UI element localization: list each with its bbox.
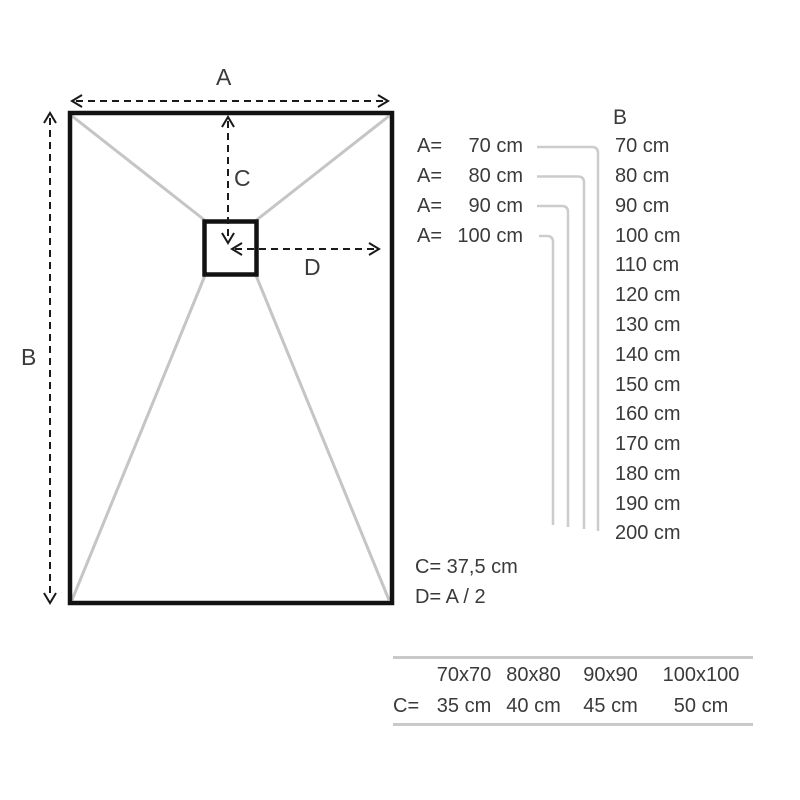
label-height-b: B (21, 346, 36, 369)
size-table-row-label: C= (393, 695, 433, 718)
b-size-value: 190 cm (615, 489, 681, 519)
arrowhead-down-icon (44, 593, 56, 603)
connector-a100 (539, 236, 553, 525)
formula-c: C= 37,5 cm (415, 552, 518, 582)
connector-a80 (537, 177, 584, 530)
b-size-value: 180 cm (615, 459, 681, 489)
b-size-list: 70 cm 80 cm 90 cm 100 cm 110 cm 120 cm 1… (615, 132, 681, 549)
connector-lines (537, 147, 598, 531)
c-value-cell: 35 cm (433, 691, 495, 722)
b-size-value: 140 cm (615, 340, 681, 370)
a-size-label: A= (417, 165, 442, 188)
size-cell: 90x90 (572, 660, 649, 691)
a-size-row: A= 90 cm (417, 192, 523, 222)
size-table: 70x70 80x80 90x90 100x100 C= 35 cm 40 cm… (393, 656, 753, 726)
c-value-cells: 35 cm 40 cm 45 cm 50 cm (433, 691, 753, 722)
b-size-value: 90 cm (615, 192, 681, 222)
size-table-c-row: C= 35 cm 40 cm 45 cm 50 cm (393, 691, 753, 722)
b-column-header: B (613, 106, 627, 130)
formula-block: C= 37,5 cm D= A / 2 (415, 552, 518, 612)
size-cell: 100x100 (649, 660, 753, 691)
b-size-value: 110 cm (615, 251, 681, 281)
label-drain-offset-d: D (304, 256, 321, 279)
b-size-value: 130 cm (615, 311, 681, 341)
slope-line-top-left (72, 116, 207, 222)
shower-tray-dimension-diagram: A B C D B A= 70 cm A= 80 cm A= 90 cm A= … (0, 0, 800, 800)
a-size-value: 70 cm (469, 135, 523, 158)
dim-arrow-a (72, 95, 388, 107)
size-cell: 80x80 (495, 660, 572, 691)
b-size-value: 200 cm (615, 519, 681, 549)
size-table-header-row: 70x70 80x80 90x90 100x100 (393, 660, 753, 691)
b-size-value: 150 cm (615, 370, 681, 400)
a-size-row: A= 100 cm (417, 221, 523, 251)
a-size-value: 80 cm (469, 165, 523, 188)
b-size-value: 80 cm (615, 162, 681, 192)
b-size-value: 160 cm (615, 400, 681, 430)
size-cell: 70x70 (433, 660, 495, 691)
dim-arrow-b (44, 113, 56, 603)
b-size-value: 100 cm (615, 221, 681, 251)
a-size-list: A= 70 cm A= 80 cm A= 90 cm A= 100 cm (417, 132, 523, 251)
label-width-a: A (216, 66, 231, 89)
a-size-label: A= (417, 135, 442, 158)
a-size-value: 100 cm (457, 225, 523, 248)
label-drain-depth-c: C (234, 167, 251, 190)
slope-line-bottom-right (255, 273, 389, 600)
size-cells: 70x70 80x80 90x90 100x100 (433, 660, 753, 691)
a-size-value: 90 cm (469, 195, 523, 218)
b-size-value: 120 cm (615, 281, 681, 311)
c-value-cell: 45 cm (572, 691, 649, 722)
slope-lines (72, 116, 389, 600)
a-size-row: A= 70 cm (417, 132, 523, 162)
a-size-row: A= 80 cm (417, 162, 523, 192)
slope-line-top-right (254, 116, 389, 222)
c-value-cell: 40 cm (495, 691, 572, 722)
b-size-value: 170 cm (615, 430, 681, 460)
b-size-value: 70 cm (615, 132, 681, 162)
a-size-label: A= (417, 195, 442, 218)
c-value-cell: 50 cm (649, 691, 753, 722)
slope-line-bottom-left (72, 273, 206, 600)
tray-outline (70, 113, 392, 603)
a-size-label: A= (417, 225, 442, 248)
formula-d: D= A / 2 (415, 582, 518, 612)
